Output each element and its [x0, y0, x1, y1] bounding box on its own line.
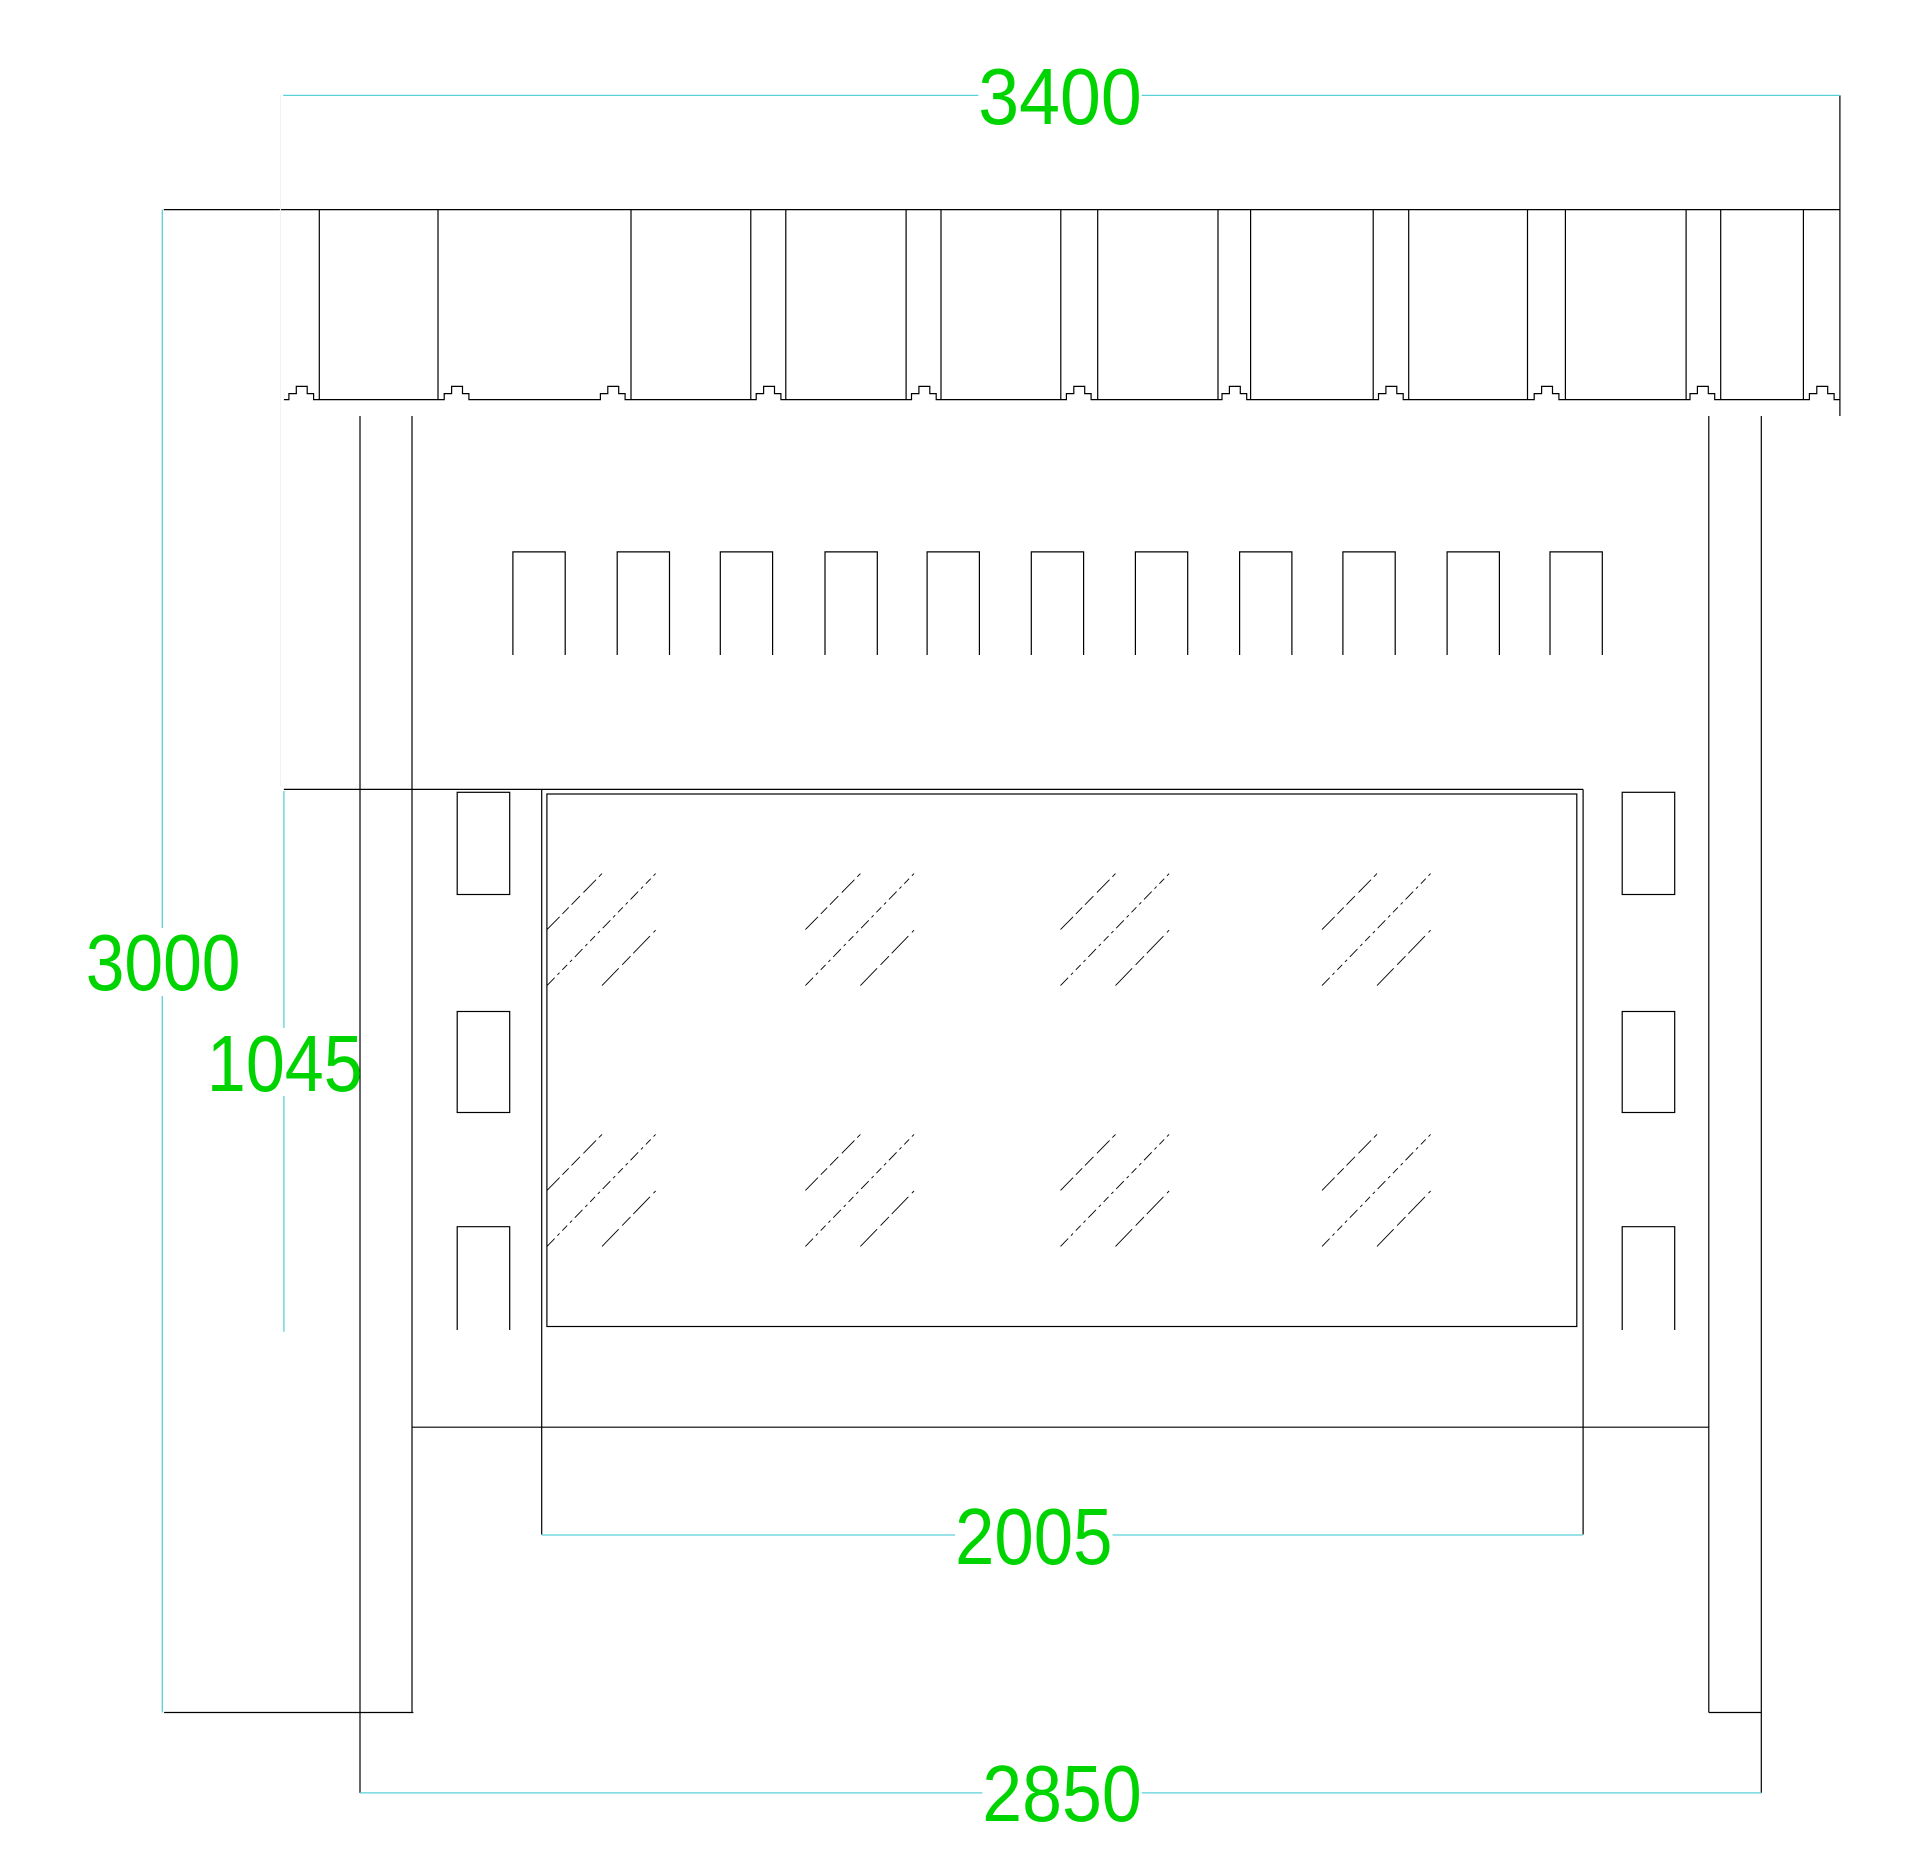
svg-text:2005: 2005 [955, 1492, 1113, 1581]
svg-text:3400: 3400 [978, 52, 1141, 141]
svg-text:3000: 3000 [86, 918, 241, 1007]
svg-text:2850: 2850 [982, 1749, 1141, 1838]
svg-text:1045: 1045 [207, 1019, 363, 1108]
